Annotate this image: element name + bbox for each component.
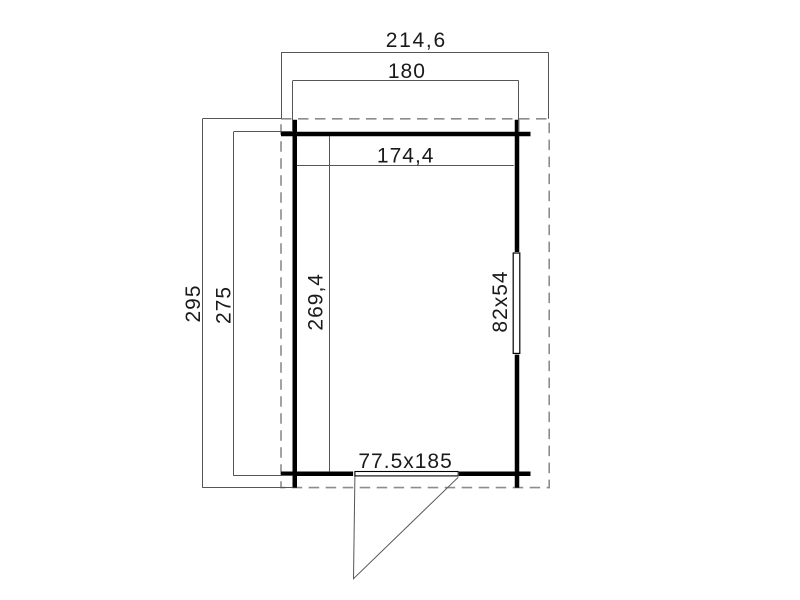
svg-text:77.5x185: 77.5x185 [358,450,452,473]
svg-text:174,4: 174,4 [377,145,435,168]
svg-text:275: 275 [212,286,235,324]
svg-text:180: 180 [388,60,426,83]
svg-text:269,4: 269,4 [305,273,328,331]
svg-text:82x54: 82x54 [489,270,512,332]
svg-text:214,6: 214,6 [386,29,447,52]
svg-text:295: 295 [182,284,205,322]
